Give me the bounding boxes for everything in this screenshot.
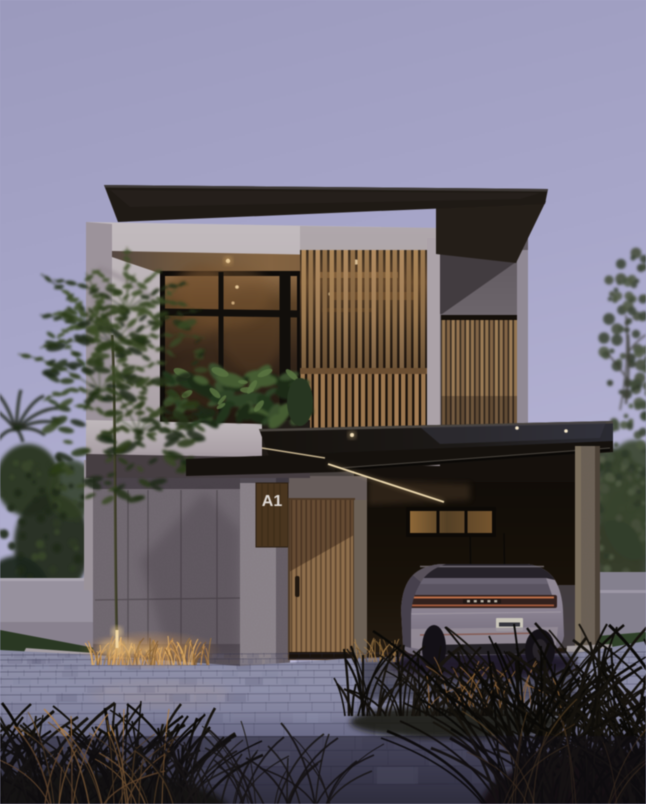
svg-text:A1: A1 <box>262 493 283 510</box>
